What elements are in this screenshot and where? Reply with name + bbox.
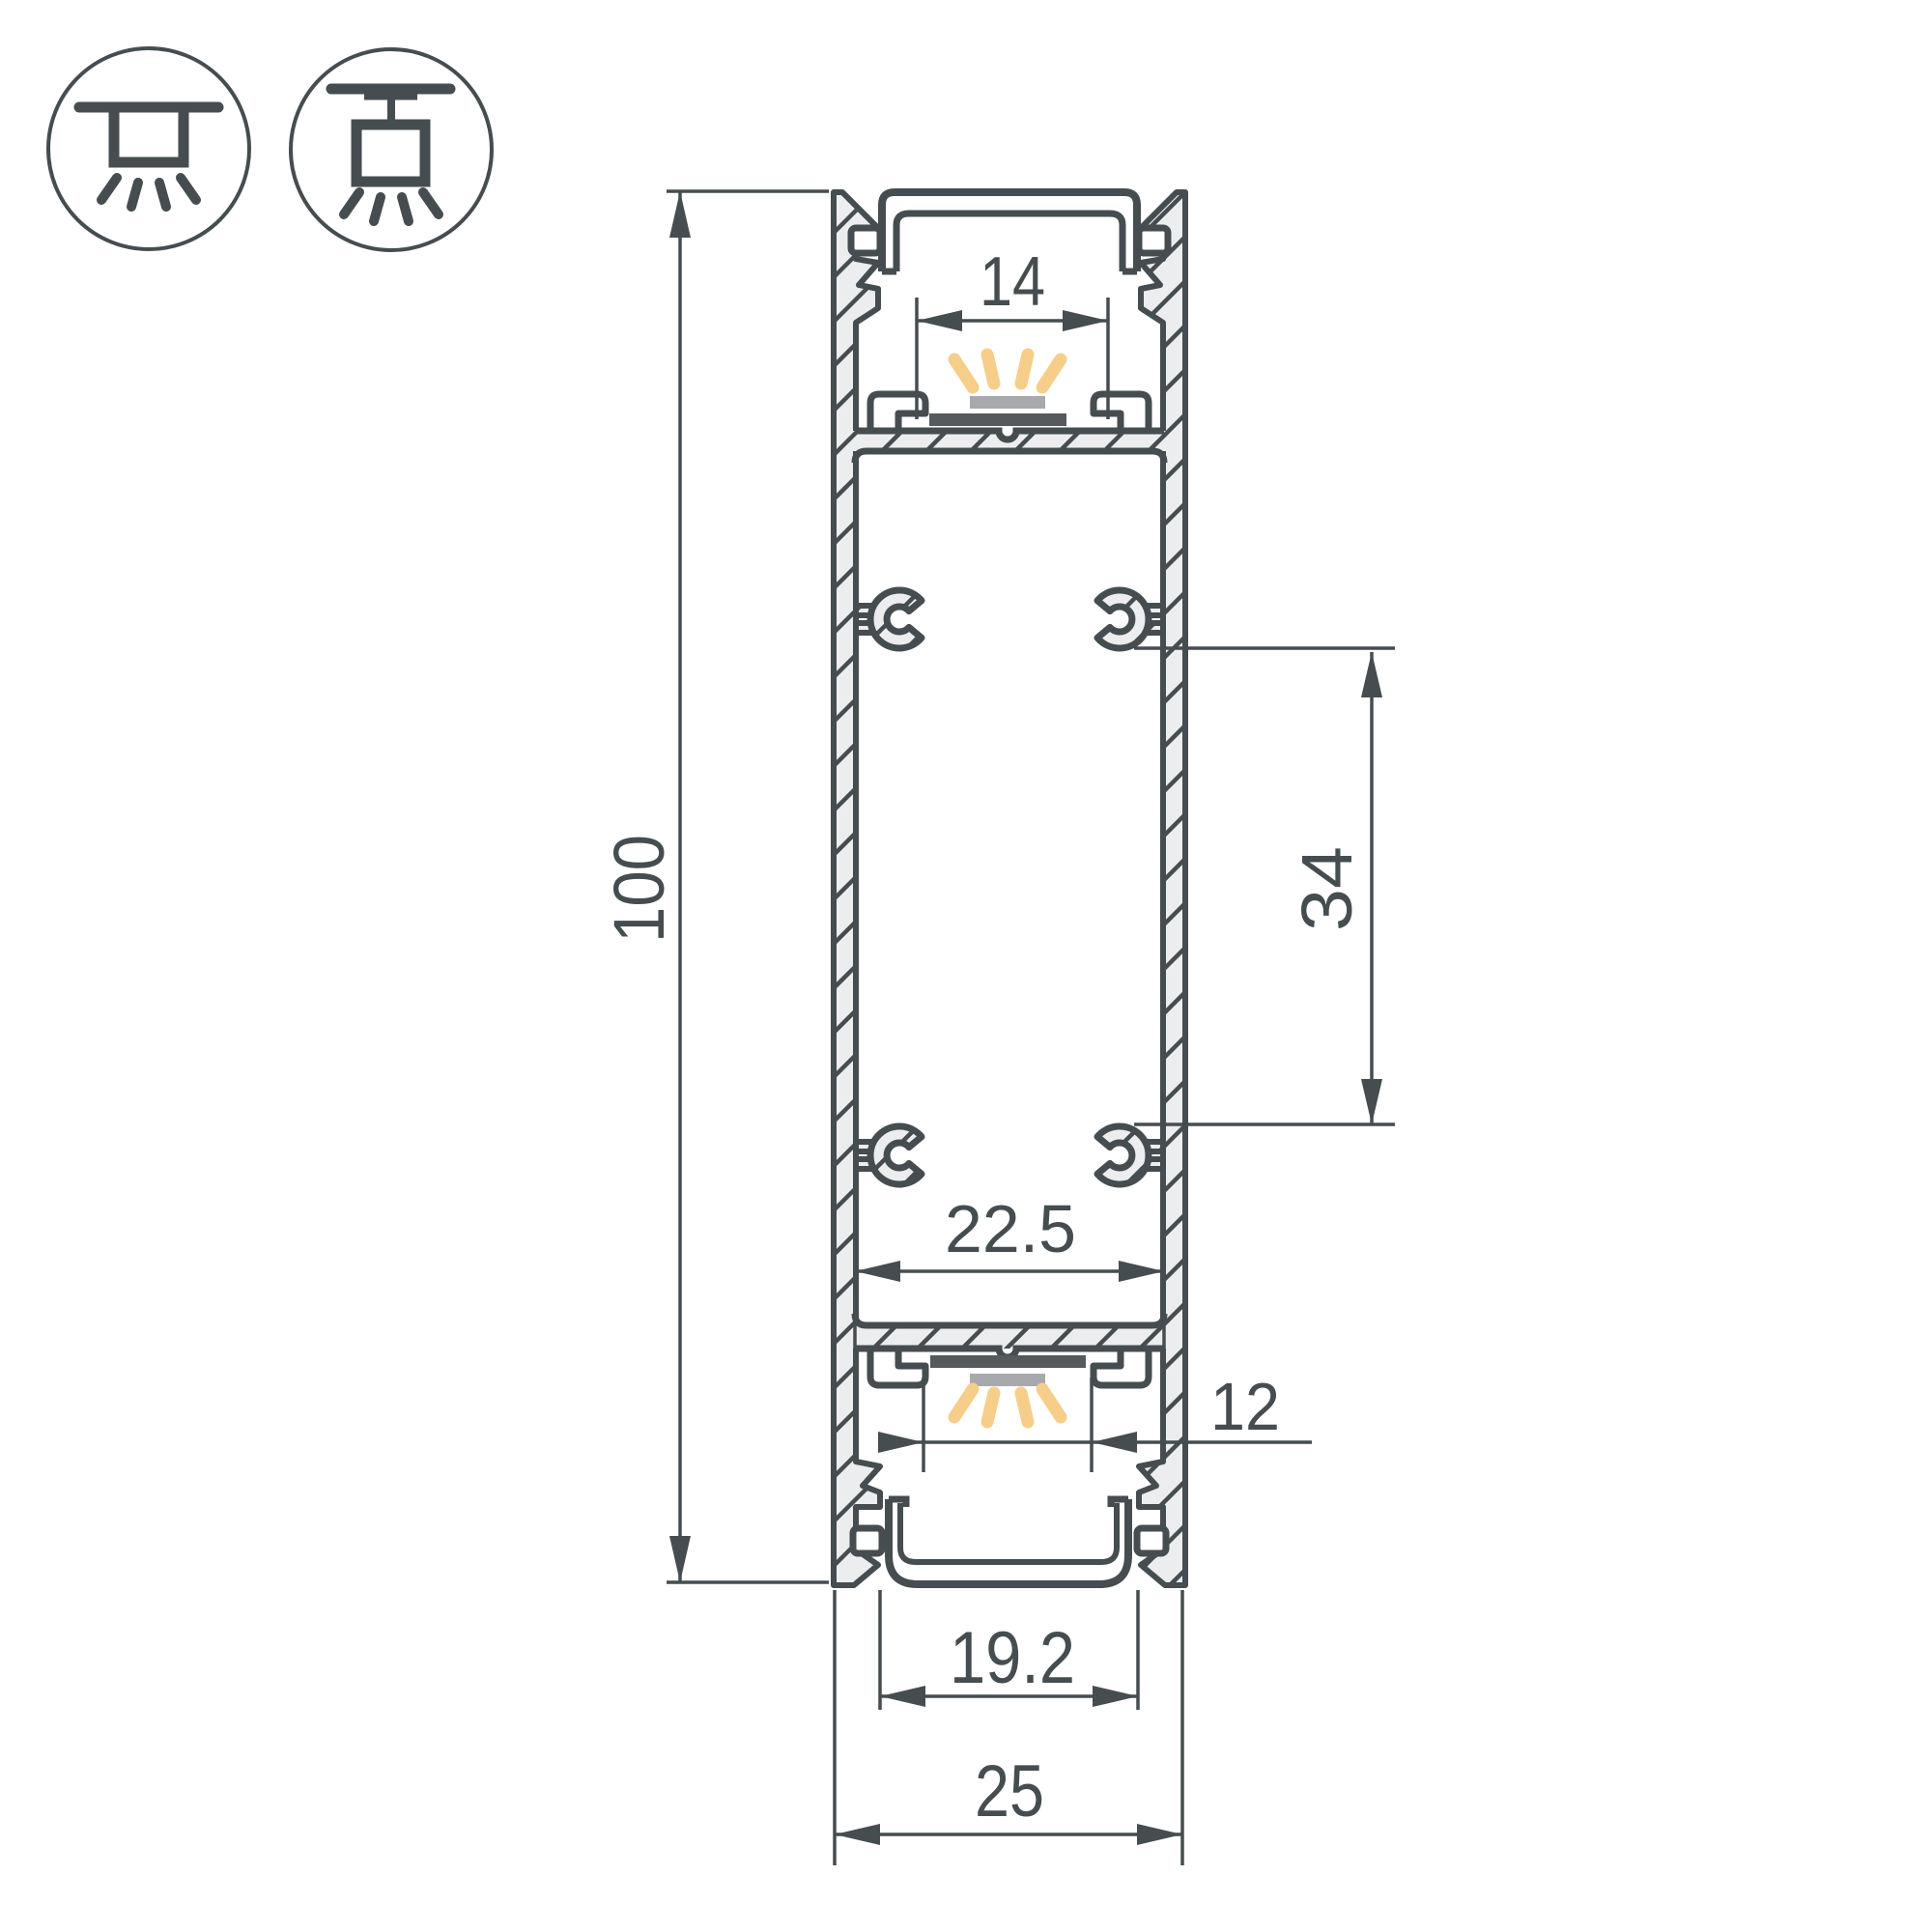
svg-text:100: 100	[599, 835, 679, 943]
svg-text:22.5: 22.5	[945, 1191, 1076, 1266]
svg-text:14: 14	[980, 243, 1045, 321]
svg-text:25: 25	[975, 1750, 1044, 1833]
svg-text:34: 34	[1287, 846, 1367, 931]
svg-text:19.2: 19.2	[950, 1617, 1075, 1699]
svg-text:12: 12	[1210, 1369, 1280, 1444]
